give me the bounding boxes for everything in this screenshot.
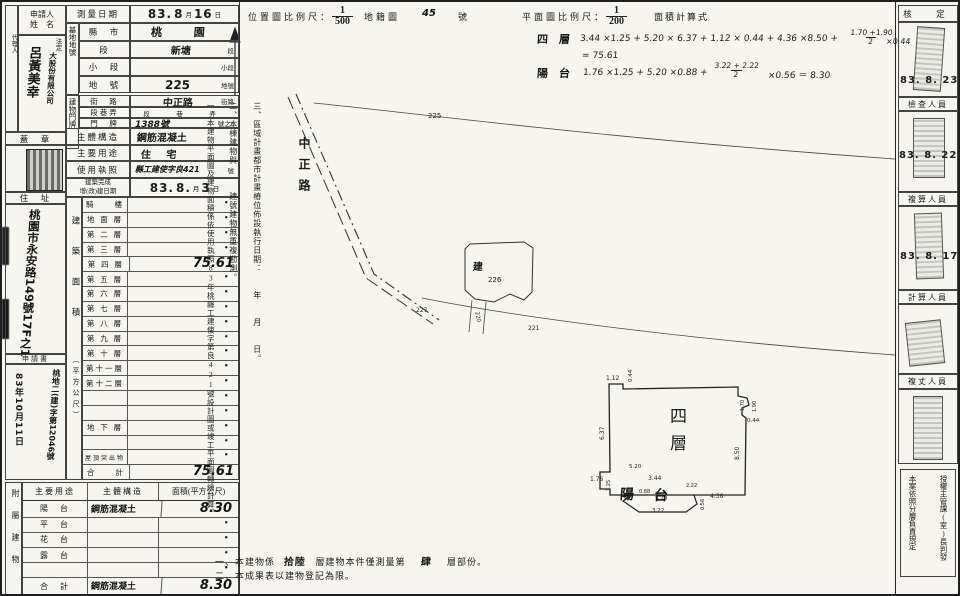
applicant-company: 大股份有限公司 [44, 52, 59, 105]
dim-0-44-b: 0.44 [747, 418, 759, 424]
survey-date-label: 測量日期 [66, 5, 130, 23]
street-value: 中正路 街路 [130, 95, 239, 107]
check-stamp [913, 118, 945, 178]
applicant-extra: 法定 [52, 38, 62, 51]
bottom-note-floor-hw: 肆 [420, 553, 432, 568]
dim-0-44-a: 0.44 [628, 370, 634, 382]
note-1: 一、本建物平面圖及建物面積係依使用執照83年桃縣工建使字第良421號設計圖或竣工… [206, 102, 214, 552]
measure-stamp [913, 396, 943, 460]
dim-0-88: 0.88 [639, 489, 650, 495]
formula-floor4-expr1: 3.44 ×1.25 + 5.20 × 6.37 + 1.12 × 0.44 +… [579, 34, 838, 44]
survey-result-form: 代理人 申請人 姓 名 法定 大股份有限公司 呂黃美幸 蓋 章 住 址 桃園市永… [0, 0, 960, 596]
note-3: 三、區域計畫都市計畫樁位佈設執行日期： 年 月 日。 [252, 102, 261, 392]
recheck-stamp [914, 213, 944, 280]
dim-8-50: 8.50 [734, 447, 741, 460]
bottom-note-1: 一、本建物係 拾陸 層建物本件僅測量第 肆 層部份。 [215, 553, 487, 568]
parcel-label: 地 號 [79, 76, 130, 93]
dim-1-25: 1.25 [606, 480, 612, 491]
structure-label: 主體構造 [66, 128, 130, 145]
subsection-value: 小段 [130, 58, 239, 76]
dim-1-12: 1.12 [606, 375, 619, 382]
note-2: 二、本棟建物與 建號建物無重複勘測。 [228, 102, 237, 442]
measure-label: 複丈人員 [898, 374, 958, 389]
plan-balcony-label-1: 陽 [619, 484, 634, 504]
right-panel: 核 定 83. 8. 23 檢查人員 83. 8. 22 複算人員 83. 8.… [895, 2, 959, 596]
parcel-221-label: 221 [528, 325, 539, 332]
boundary-lower [422, 298, 895, 355]
license-value: 縣工建使字良421 號 [130, 161, 239, 178]
formula-balcony-expr1: 1.76 ×1.25 + 5.20 ×0.88 + [582, 68, 708, 78]
formula-balcony-label: 陽 台 [536, 65, 570, 81]
check-date: 83. 8. 22 [899, 150, 957, 161]
parcel-227-label: 227 [416, 307, 427, 314]
check-label: 檢查人員 [898, 97, 958, 111]
cadastre-label: 地籍圖 [364, 10, 400, 23]
cadastre-no: 45 [422, 8, 436, 19]
dim-2-22: 2.22 [686, 483, 697, 489]
street-label: 街 路 [79, 95, 130, 107]
building-mark: 建 [472, 258, 483, 273]
location-scale-label: 位置圖比例尺： [248, 10, 332, 23]
county-label: 縣 市 [79, 23, 130, 41]
calc-stamp [905, 319, 945, 367]
section-value: 新塘 段 [130, 41, 239, 58]
section-label: 段 [79, 41, 130, 58]
bottom-note-floors-hw: 拾陸 [284, 553, 307, 568]
dim-1-70: 1.70 [740, 400, 746, 411]
form-right-border [239, 2, 240, 596]
dim-1-90: 1.90 [752, 401, 758, 412]
license-label: 使用執照 [66, 161, 130, 178]
lane-label: 段巷弄 [79, 107, 130, 118]
applicant-name: 呂黃美幸 [21, 46, 44, 98]
application-label: 申請書 [5, 354, 66, 364]
applicant-header: 申請人 姓 名 [18, 5, 66, 35]
address-value: 桃園市永安路149號17F之1 [17, 209, 43, 357]
check-stamp-cell: 83. 8. 22 [898, 111, 958, 192]
structure-value: 鋼筋混凝土 [130, 128, 239, 145]
formula-floor4-label: 四 層 [536, 31, 570, 47]
attached-group-cell: 附屬建物 [5, 482, 22, 595]
address-cell: 桃園市永安路149號17F之1 [5, 204, 66, 354]
agent-strip: 代理人 [5, 5, 18, 132]
boundary-upper [314, 103, 895, 159]
calc-stamp-cell [898, 304, 958, 374]
plan-floor-label: 四層 [664, 407, 689, 461]
address-label: 住 址 [5, 192, 66, 204]
bottom-note-2: 二、本成果表以建物登記為限。 [215, 569, 355, 582]
road-name-label: 中正路 [296, 137, 313, 200]
delegation-box: 授權主管課(室)長判發 本案依照分層負責規定 [900, 469, 956, 577]
recheck-date: 83. 8. 17 [900, 251, 958, 262]
dim-5-20-a: 5.20 [629, 464, 641, 470]
recheck-label: 複算人員 [898, 192, 958, 206]
parcel-220-label: 220 [473, 311, 481, 322]
location-scale-fraction: 1 500 [332, 6, 353, 27]
dim-3-44: 3.44 [648, 475, 661, 482]
approve-label: 核 定 [898, 5, 958, 22]
formula-balcony-expr2: ×0.56 ＝ 8.30 [767, 68, 831, 81]
door-value: 1388號 號之5 [130, 118, 239, 128]
dim-6-37: 6.37 [599, 427, 606, 440]
delegation-line-1: 授權主管課(室)長判發 [938, 475, 949, 561]
delegation-line-2: 本案依照分層負責規定 [907, 475, 918, 550]
dim-1-76: 1.76 [590, 476, 603, 483]
road-line-west [288, 97, 433, 324]
usage-label: 主要用途 [66, 145, 130, 161]
approve-stamp-cell: 83. 8. 23 [898, 22, 958, 97]
dim-4-36: 4.36 [710, 493, 723, 500]
survey-date-value: 83. 8 月 16 日 [130, 5, 239, 23]
dim-3-22: 3.22 [652, 508, 664, 514]
usage-value: 住 宅 [130, 145, 239, 161]
plan-scale-label: 平面圖比例尺： [522, 10, 606, 23]
approve-date: 83. 8. 23 [900, 75, 958, 86]
calc-label: 計算人員 [898, 290, 958, 304]
parcel-226-label: 226 [488, 276, 501, 284]
area-axis-cell: 建築面積 （平方公尺） [66, 197, 82, 480]
application-cell: 桃地二(建)字第12046號 83年10月11日 [5, 364, 66, 480]
completion-label: 建築完成 增(改)建日期 [66, 178, 130, 197]
plan-scale-fraction: 1 200 [606, 6, 627, 27]
county-value: 桃 園 [130, 23, 239, 41]
attached-row: • [23, 563, 238, 578]
attached-row-total: 合 計 鋼筋混凝土 8.30 [23, 578, 238, 594]
area-axis-label: 建築面積 [70, 216, 82, 338]
road-line-east [296, 94, 439, 320]
cadastre-suffix: 號 [458, 10, 467, 23]
application-no: 桃地二(建)字第12046號 [45, 369, 62, 460]
plan-balcony-label-2: 台 [653, 485, 668, 505]
area-calc-label: 面積計算式 [654, 10, 709, 23]
recheck-stamp-cell: 83. 8. 17 [898, 206, 958, 290]
subsection-label: 小 段 [79, 58, 130, 76]
completion-value: 83. 8. 月 3 日 [130, 178, 239, 197]
parcel-value: 225 地號 [130, 76, 239, 93]
dim-5-20-b: 5.20 [655, 496, 667, 502]
seal-label: 蓋 章 [5, 132, 66, 145]
measure-stamp-cell [898, 389, 958, 464]
dim-0-56: 0.56 [700, 499, 706, 510]
door-label: 門 牌 [79, 118, 130, 128]
formula-balcony-fraction: 3.22 + 2.22 2 [713, 62, 759, 78]
area-axis-unit: （平方公尺） [71, 356, 81, 422]
applicant-name-cell: 法定 大股份有限公司 呂黃美幸 [18, 35, 66, 132]
applicant-seal-stamp [26, 149, 63, 191]
agent-label: 代理人 [8, 34, 18, 54]
site-group-cell: 基地地號 [66, 23, 79, 95]
parcel-225-label: 225 [428, 112, 441, 120]
formula-floor4-result: = 75.61 [581, 51, 618, 61]
floors-table: 騎 樓• 地 面 層• 第 二 層• 第 三 層• 第 四 層75.61 第 五… [82, 197, 239, 480]
application-date-stamp: 83年10月11日 [12, 373, 25, 447]
seal-cell [5, 145, 66, 192]
